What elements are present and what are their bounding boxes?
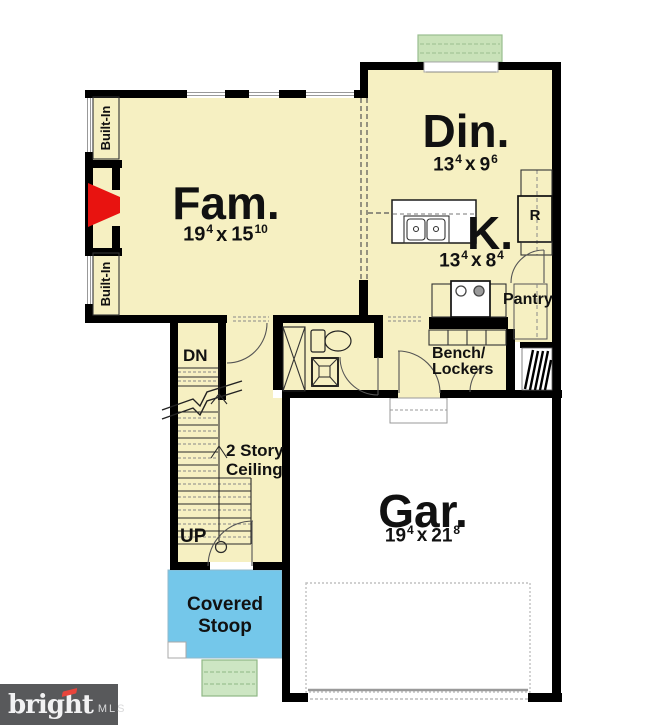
room-dims-garage: 194x218 [323,523,523,547]
room-dims-family: 194x1510 [120,222,332,247]
lockers-label: Lockers [432,361,493,379]
watermark-brand: bright [8,692,93,718]
floor-plan: Fam. 194x1510 Din. 134x96 K. 134x84 Gar.… [0,0,652,725]
window [187,90,225,98]
covered-label: Covered [168,594,282,616]
stairs-up-label: UP [180,526,206,548]
bright-mls-watermark: bright MLS [0,684,118,725]
built-in-bottom-label: Built-In [98,253,114,315]
window [85,98,93,152]
room-dims-dining: 134x96 [370,152,562,176]
window [306,90,354,98]
ceiling-label: Ceiling [226,460,283,480]
hatched-box [522,348,552,390]
garage-entry-steps [390,398,447,423]
built-in-top-label: Built-In [98,97,114,159]
room-dims-kitchen: 134x84 [410,248,534,272]
refrigerator-label: R [525,207,545,224]
pantry-label: Pantry [503,291,553,309]
watermark-suffix: MLS [98,703,127,715]
front-steps [202,660,257,696]
window [249,90,279,98]
window [85,254,93,304]
stairs-dn-label: DN [183,346,208,366]
back-door-threshold [424,62,498,72]
back-stoop-steps [418,35,502,62]
porch-post [168,642,186,658]
room-name-dining: Din. [370,104,562,158]
two-story-label: 2 Story [226,441,284,461]
stoop-label: Stoop [168,616,282,638]
